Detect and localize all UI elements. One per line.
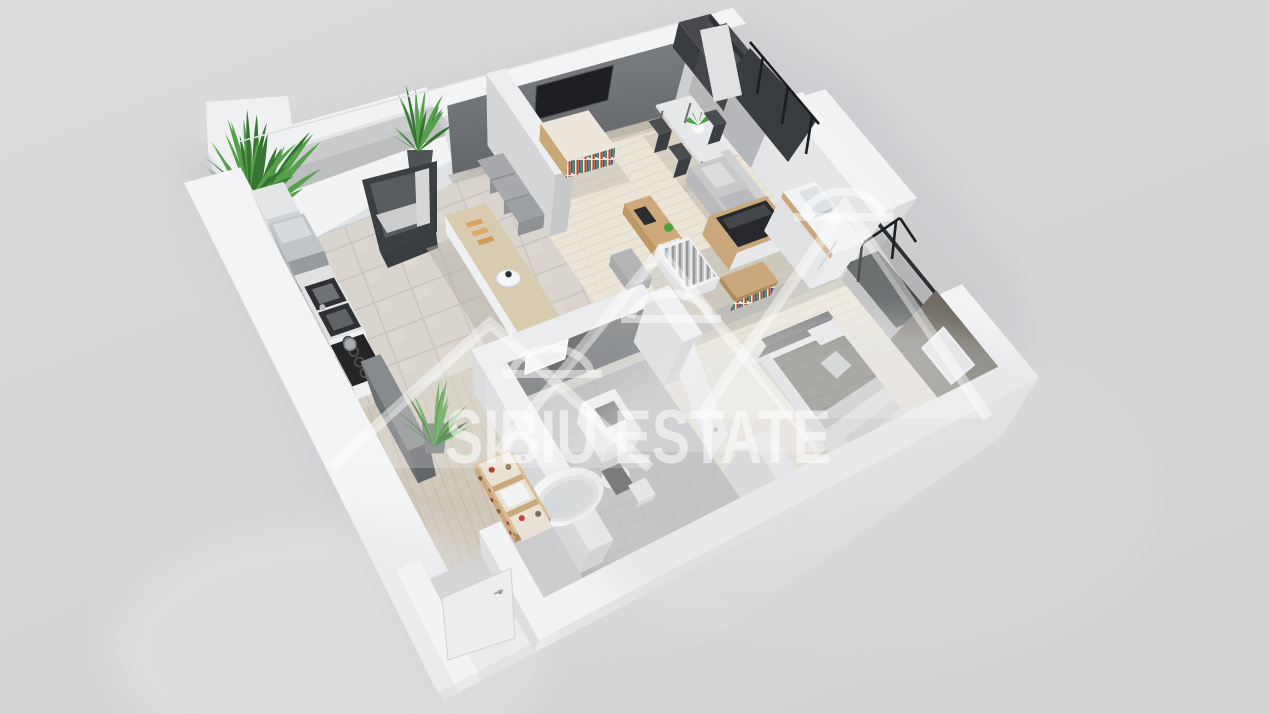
svg-text:SIBIU ESTATE: SIBIU ESTATE	[445, 395, 831, 480]
